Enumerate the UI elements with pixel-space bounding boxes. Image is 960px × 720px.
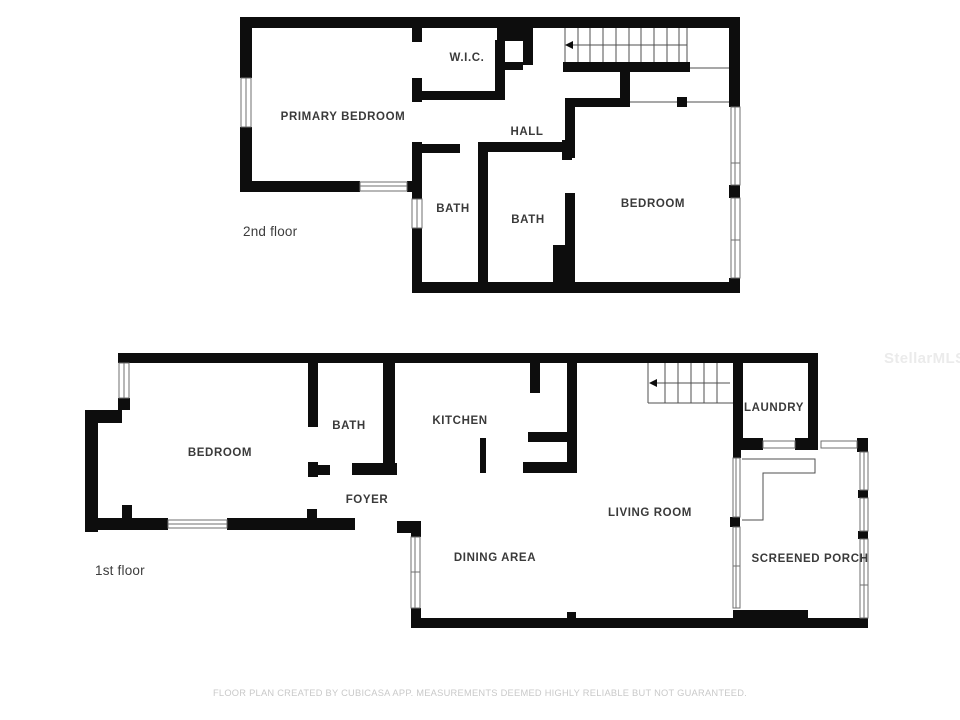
stair-arrow-icon	[565, 41, 573, 49]
floor1-stairs	[648, 363, 733, 403]
floor1-label: 1st floor	[95, 563, 145, 578]
room-label-bath-left: BATH	[436, 203, 470, 215]
footer-disclaimer: FLOOR PLAN CREATED BY CUBICASA APP. MEAS…	[213, 688, 747, 698]
room-label-living-room: LIVING ROOM	[608, 507, 692, 519]
room-label-bath-right: BATH	[511, 214, 545, 226]
floor1-plan: BEDROOM BATH KITCHEN FOYER LAUNDRY LIVIN…	[85, 353, 869, 628]
room-label-bath-1f: BATH	[332, 420, 366, 432]
room-label-screened-porch: SCREENED PORCH	[751, 553, 868, 565]
floor2-label: 2nd floor	[243, 224, 298, 239]
porch-step-outline	[742, 459, 815, 520]
room-label-wic: W.I.C.	[450, 52, 485, 64]
floor-plan-page: PRIMARY BEDROOM W.I.C. HALL BATH BATH BE…	[0, 0, 960, 720]
room-label-foyer: FOYER	[346, 494, 389, 506]
room-label-dining-area: DINING AREA	[454, 552, 536, 564]
floor2-windows	[241, 78, 740, 278]
room-label-hall: HALL	[510, 126, 543, 138]
window	[821, 441, 857, 448]
floor-plan-svg: PRIMARY BEDROOM W.I.C. HALL BATH BATH BE…	[0, 0, 960, 720]
floor2-plan: PRIMARY BEDROOM W.I.C. HALL BATH BATH BE…	[240, 17, 740, 293]
room-label-laundry: LAUNDRY	[744, 402, 804, 414]
room-label-bedroom-1f: BEDROOM	[188, 447, 252, 459]
room-label-kitchen: KITCHEN	[432, 415, 487, 427]
door-opening	[763, 441, 795, 448]
room-label-primary-bedroom: PRIMARY BEDROOM	[281, 111, 406, 123]
room-label-bedroom-2f: BEDROOM	[621, 198, 685, 210]
floor1-walls	[85, 353, 868, 628]
stair-arrow-icon	[649, 379, 657, 387]
floor2-walls	[240, 17, 740, 293]
stellar-mls-watermark: StellarMLS	[884, 350, 960, 367]
